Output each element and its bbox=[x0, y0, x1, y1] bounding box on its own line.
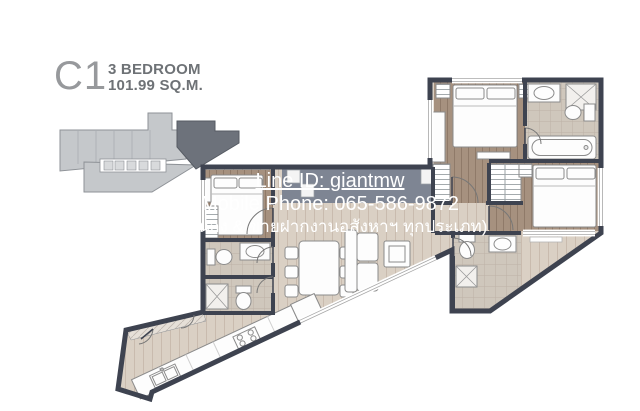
sofa-cushion bbox=[357, 233, 378, 261]
pillow bbox=[567, 168, 595, 179]
bathroom3-fixtures bbox=[206, 284, 251, 310]
nightstand bbox=[519, 164, 532, 177]
dining-chair bbox=[285, 247, 298, 259]
unit-summary: 3 BEDROOM 101.99 SQ.M. bbox=[108, 62, 203, 94]
window bbox=[452, 77, 522, 84]
wardrobe bbox=[205, 206, 218, 238]
window bbox=[427, 100, 434, 158]
floorplan-page: C1 3 BEDROOM 101.99 SQ.M. สนใจติดต่อ เติ… bbox=[0, 0, 640, 411]
window bbox=[598, 168, 605, 226]
toilet-tank bbox=[207, 249, 215, 265]
unit-code: C1 bbox=[54, 54, 107, 99]
wardrobe bbox=[433, 164, 450, 202]
toilet-bowl bbox=[236, 293, 251, 310]
pillow bbox=[487, 88, 515, 99]
sink bbox=[494, 238, 511, 250]
toilet-tank bbox=[459, 234, 475, 242]
pillow bbox=[214, 178, 237, 188]
desk bbox=[432, 112, 445, 162]
toilet-tank bbox=[236, 286, 251, 293]
toilet-tank bbox=[584, 104, 595, 121]
unit-area: 101.99 SQ.M. bbox=[108, 78, 203, 94]
pillow bbox=[239, 178, 262, 188]
unit-bedrooms: 3 BEDROOM bbox=[108, 62, 203, 78]
sofa-back bbox=[345, 230, 357, 292]
dining-chair bbox=[285, 266, 298, 278]
key-plan-core-units bbox=[104, 161, 160, 170]
dining-chair bbox=[285, 285, 298, 297]
toilet-bowl bbox=[565, 106, 581, 120]
pillow bbox=[536, 168, 564, 179]
bench bbox=[477, 152, 510, 159]
sink bbox=[534, 87, 554, 100]
window bbox=[523, 230, 595, 237]
bedroom3-furniture bbox=[205, 175, 263, 238]
key-plan-highlighted-unit bbox=[177, 121, 239, 169]
nightstand bbox=[436, 84, 450, 98]
balcony-ledge bbox=[282, 167, 434, 203]
coffee-table bbox=[384, 241, 410, 267]
window bbox=[200, 180, 207, 230]
dining-table bbox=[299, 241, 339, 295]
planter-ledge bbox=[530, 237, 562, 242]
pillow bbox=[456, 88, 484, 99]
toilet-bowl bbox=[216, 250, 232, 265]
